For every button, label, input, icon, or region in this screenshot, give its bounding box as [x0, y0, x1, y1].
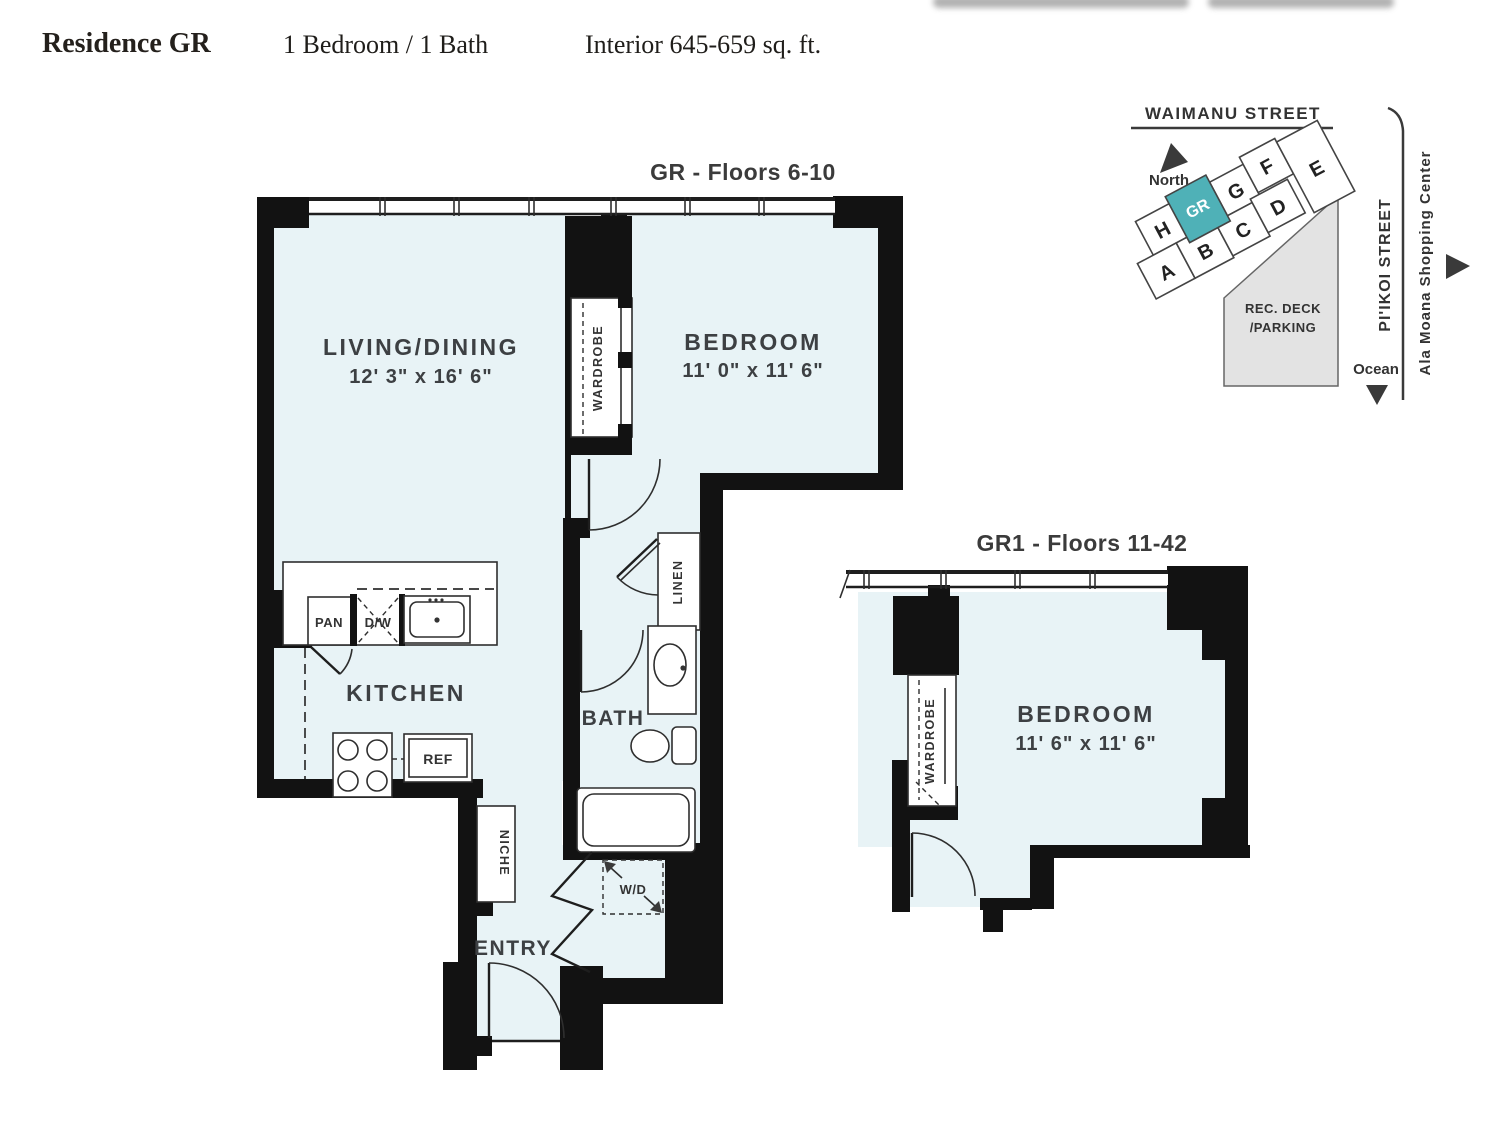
north-arrow: North — [1149, 143, 1189, 189]
gr1-bedroom-dims: 11' 6" x 11' 6" — [1015, 733, 1156, 755]
ocean-label: Ocean — [1353, 361, 1399, 378]
window-band-gr — [309, 197, 835, 216]
plan-gr1: GR1 - Floors 11-42 — [840, 530, 1250, 932]
kitchen-sink — [404, 596, 470, 643]
wd-label: W/D — [620, 882, 647, 897]
living-label: LIVING/DINING — [323, 334, 519, 360]
shopping-center-arrow-icon — [1446, 254, 1470, 279]
waimanu-street-label: WAIMANU STREET — [1145, 104, 1321, 123]
plan-gr-title: GR - Floors 6-10 — [650, 159, 836, 185]
ala-moana-label: Ala Moana Shopping Center — [1417, 150, 1434, 375]
gr1-bedroom-label: BEDROOM — [1017, 701, 1155, 727]
site-map: WAIMANU STREET North REC. DECK /PARKING — [1116, 104, 1470, 405]
vanity-sink — [648, 626, 696, 714]
bath-label: BATH — [582, 707, 645, 730]
deck-label-2: /PARKING — [1250, 320, 1317, 335]
pantry-label: PAN — [315, 615, 343, 630]
bedroom-label: BEDROOM — [684, 329, 822, 355]
wardrobe-label: WARDROBE — [591, 325, 605, 411]
plan-gr: GR - Floors 6-10 — [257, 159, 903, 1070]
kitchen-label: KITCHEN — [346, 680, 466, 706]
floorplan-sheet: Residence GR 1 Bedroom / 1 Bath Interior… — [0, 0, 1510, 1136]
stove — [333, 733, 392, 797]
piikoi-street-label: PI'IKOI STREET — [1377, 198, 1394, 331]
dishwasher-label: D/W — [365, 615, 392, 630]
plan-gr1-title: GR1 - Floors 11-42 — [977, 530, 1188, 556]
ocean-arrow-icon — [1366, 385, 1388, 405]
gr1-wardrobe-label: WARDROBE — [923, 698, 937, 784]
floorplan-canvas: GR - Floors 6-10 — [0, 0, 1510, 1136]
ref-label: REF — [423, 751, 453, 767]
niche-label: NICHE — [497, 830, 511, 876]
linen-label: LINEN — [671, 560, 685, 605]
bedroom-dims: 11' 0" x 11' 6" — [682, 360, 823, 382]
living-dims: 12' 3" x 16' 6" — [349, 366, 493, 388]
bathtub — [577, 788, 695, 852]
deck-label-1: REC. DECK — [1245, 301, 1321, 316]
entry-label: ENTRY — [474, 937, 552, 960]
north-arrow-icon — [1160, 143, 1188, 173]
